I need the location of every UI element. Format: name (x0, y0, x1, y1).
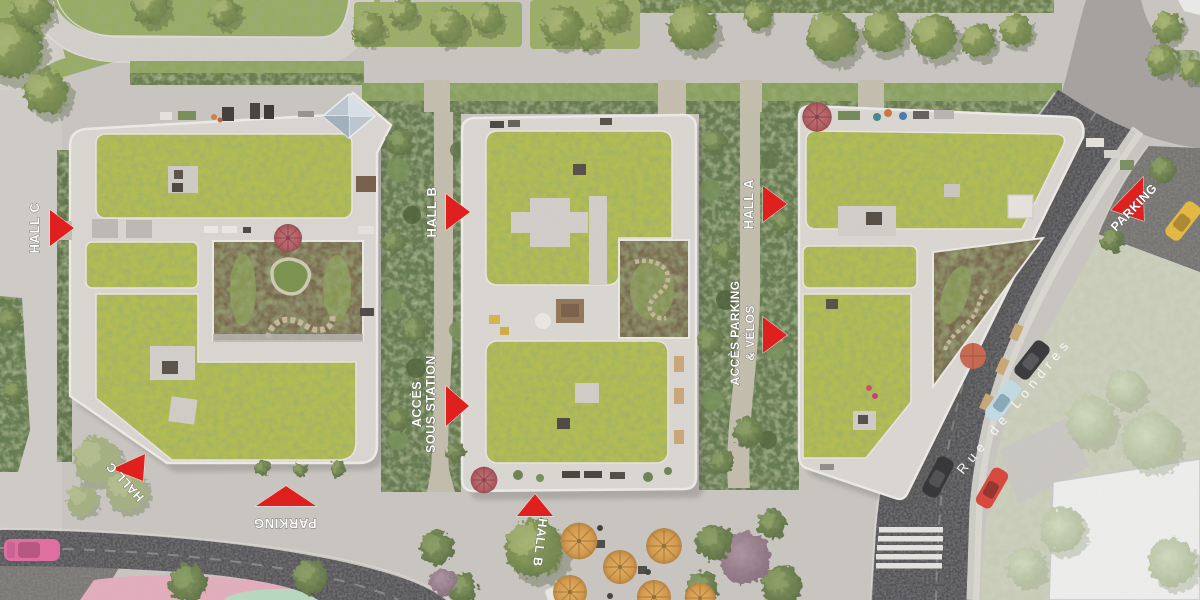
svg-text:ACCÈS: ACCÈS (409, 381, 424, 427)
svg-text:PARKING: PARKING (253, 516, 316, 531)
svg-text:HALL B: HALL B (424, 186, 439, 237)
svg-text:HALL C: HALL C (27, 202, 42, 253)
svg-text:HALL A: HALL A (741, 179, 756, 230)
svg-text:SOUS STATION: SOUS STATION (424, 355, 438, 453)
svg-text:ACCÈS PARKING: ACCÈS PARKING (727, 281, 742, 386)
svg-text:& VÉLOS: & VÉLOS (742, 305, 757, 360)
